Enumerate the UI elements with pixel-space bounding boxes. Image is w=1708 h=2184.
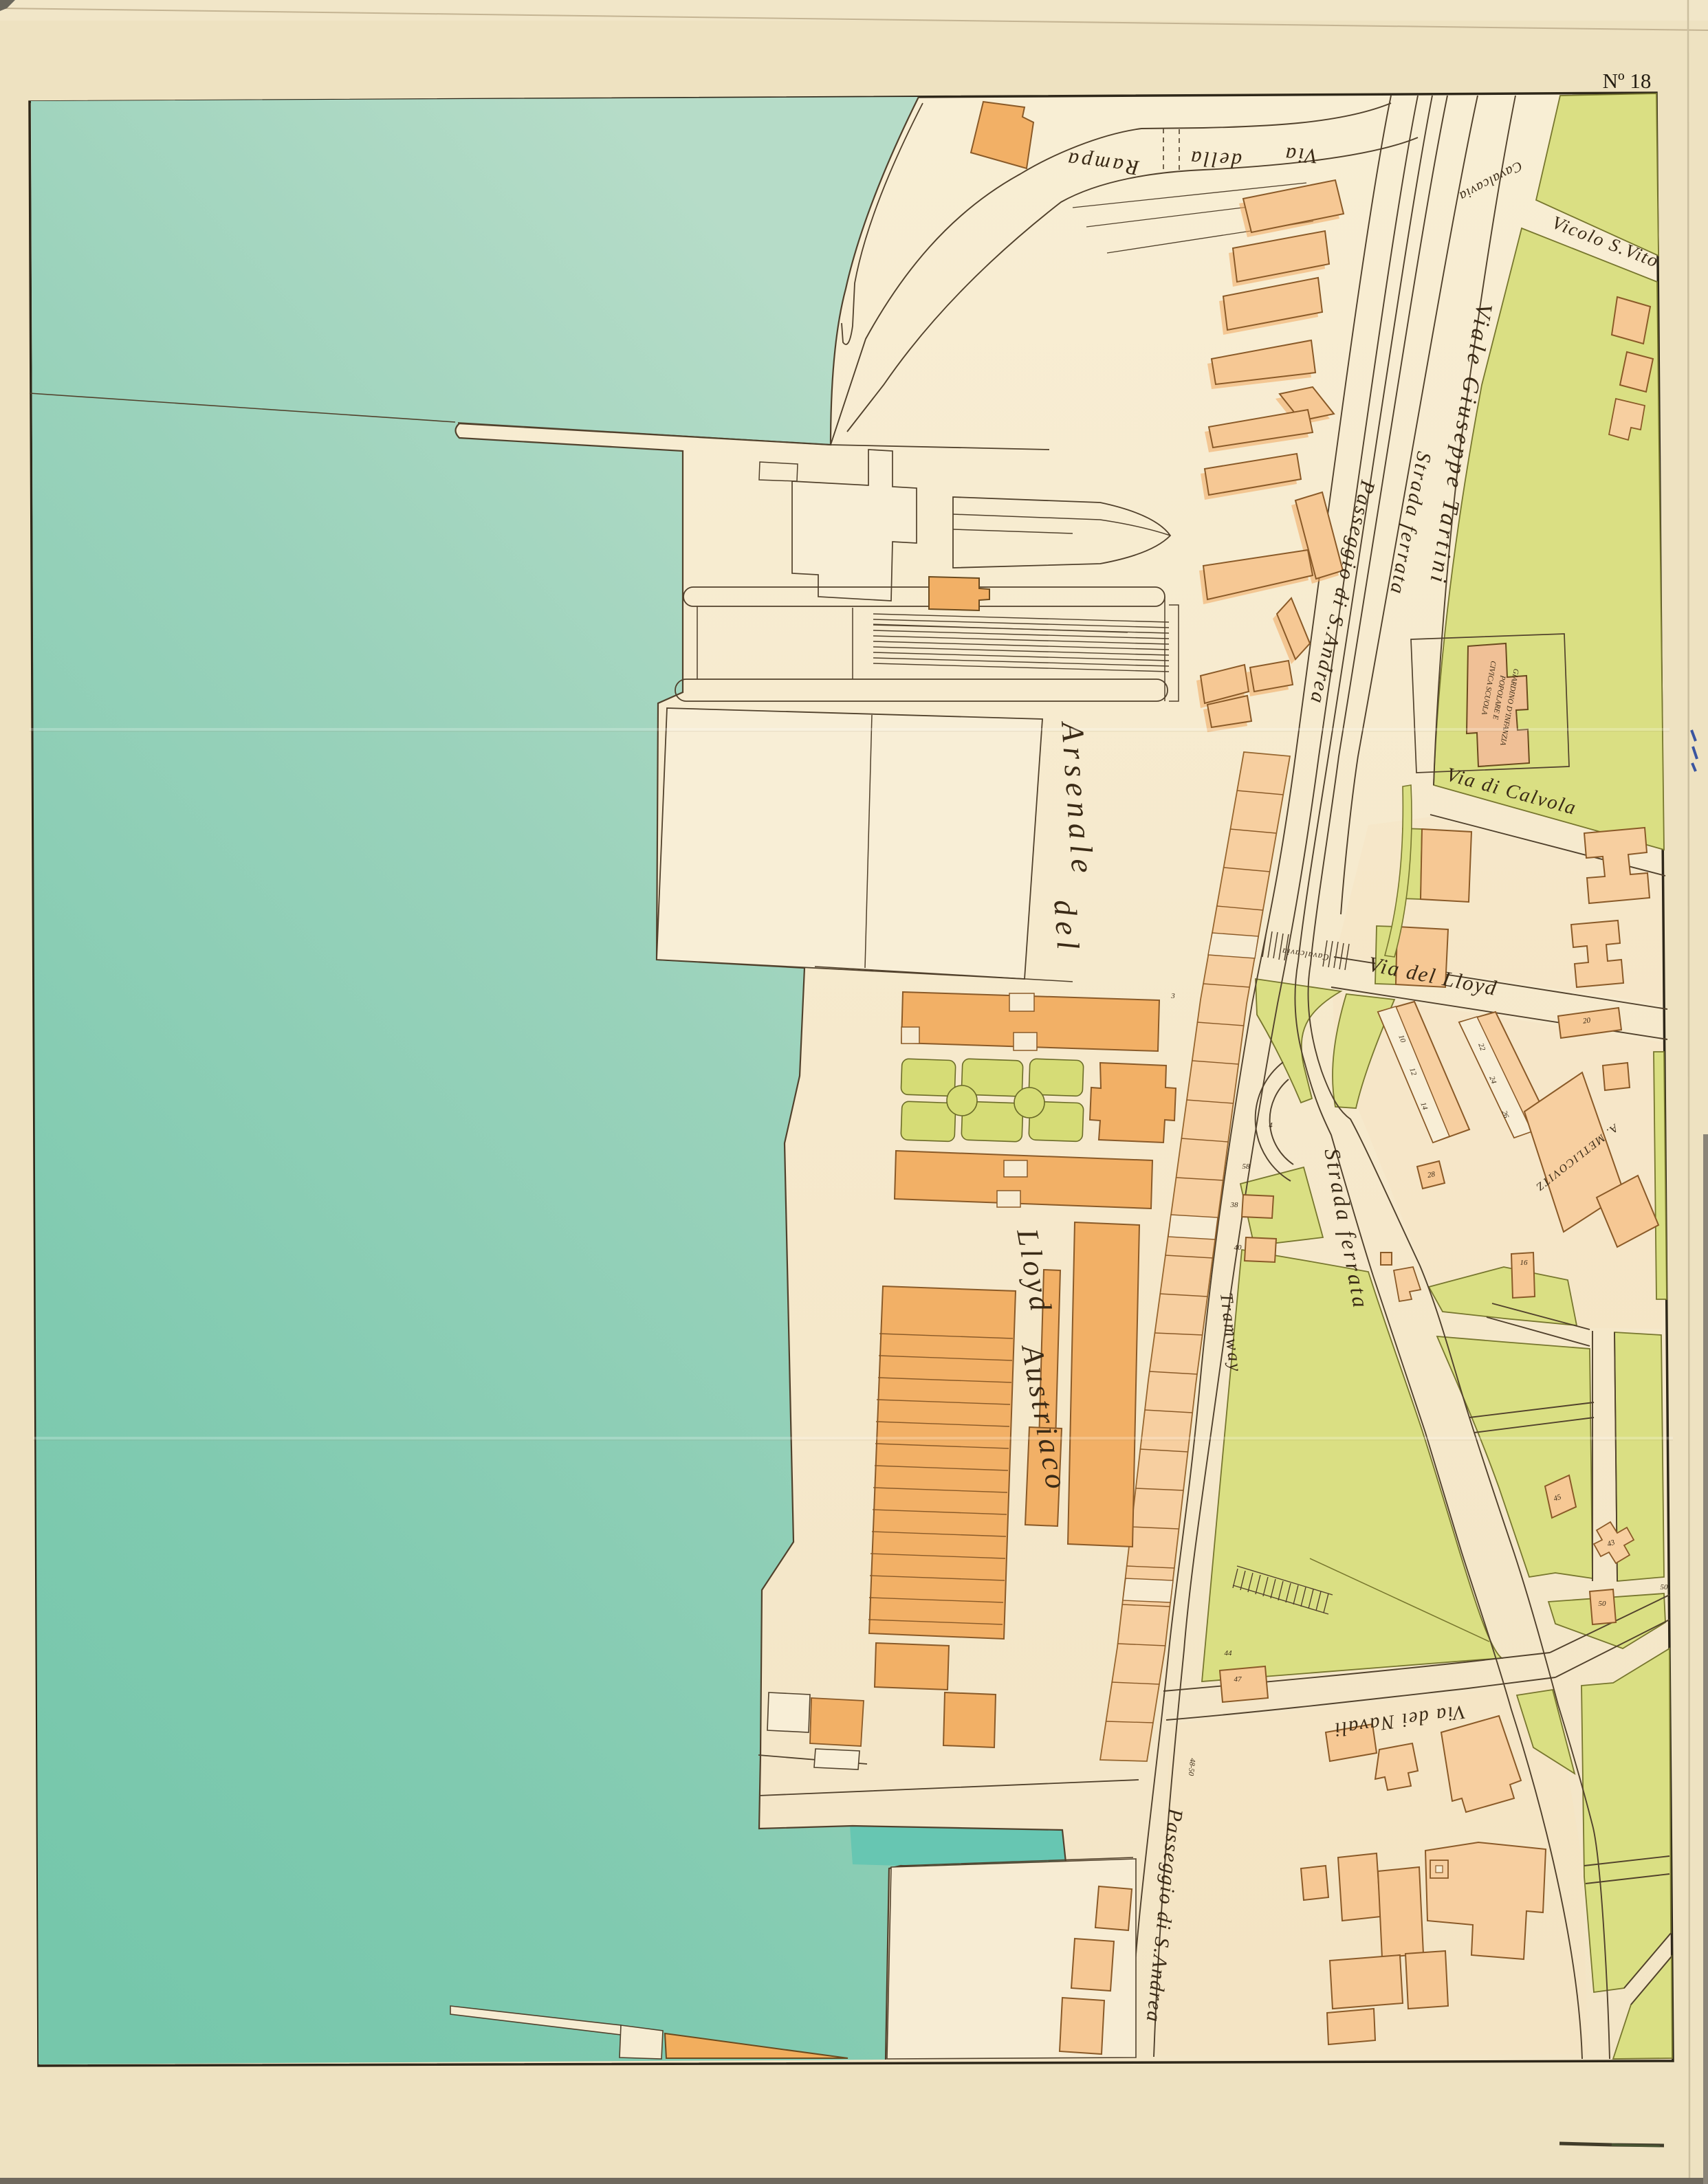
svg-text:Via: Via <box>1283 143 1319 169</box>
svg-text:58: 58 <box>1242 1162 1251 1171</box>
svg-text:50: 50 <box>1661 1583 1669 1591</box>
svg-text:Nº 18: Nº 18 <box>1603 69 1652 93</box>
svg-text:16: 16 <box>1520 1259 1529 1267</box>
svg-text:della: della <box>1188 146 1242 173</box>
svg-text:20: 20 <box>1582 1016 1591 1025</box>
svg-text:del: del <box>1047 898 1086 956</box>
svg-text:47: 47 <box>1234 1675 1242 1684</box>
svg-text:3: 3 <box>1170 992 1175 1000</box>
svg-text:50: 50 <box>1599 1600 1607 1608</box>
svg-text:38: 38 <box>1230 1201 1239 1209</box>
svg-text:40: 40 <box>1234 1244 1242 1252</box>
svg-text:44: 44 <box>1225 1649 1233 1657</box>
svg-text:4: 4 <box>1269 1121 1273 1129</box>
